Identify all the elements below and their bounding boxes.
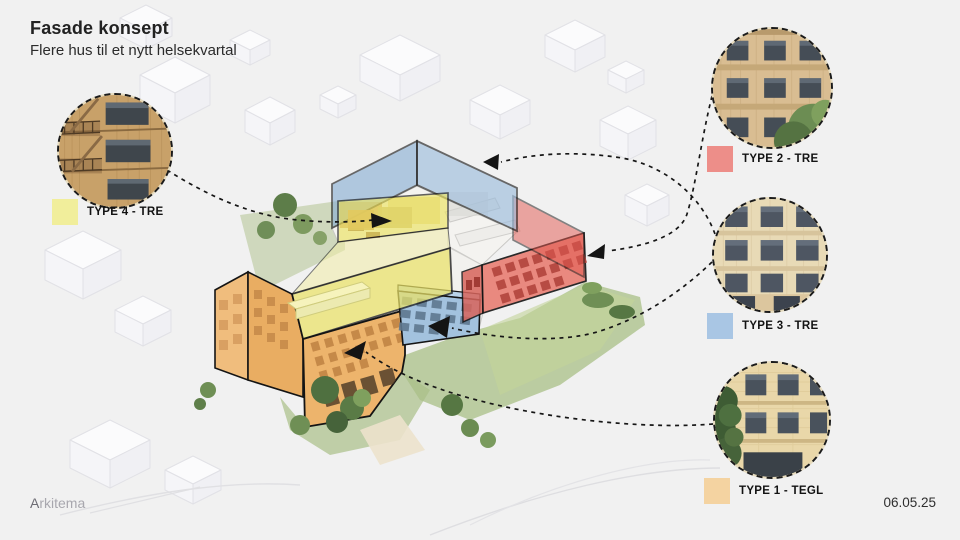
page-subtitle: Flere hus til et nytt helsekvartal (30, 42, 237, 59)
type-3-swatch (707, 313, 733, 339)
page-title: Fasade konsept (30, 18, 237, 39)
type-1-facade-photo (715, 363, 829, 477)
legend-row-type-4: TYPE 4 - TRE (52, 199, 163, 225)
legend-row-type-2: TYPE 2 - TRE (707, 146, 818, 172)
type-4-swatch (52, 199, 78, 225)
type-1-swatch (704, 478, 730, 504)
type-3-facade-photo (714, 199, 826, 311)
slide-date: 06.05.25 (883, 495, 936, 510)
type-3-label: TYPE 3 - TRE (742, 320, 818, 332)
type-4-photo-callout (57, 93, 173, 209)
header: Fasade konsept Flere hus til et nytt hel… (30, 18, 237, 59)
type-3-photo-callout (712, 197, 828, 313)
legend-row-type-3: TYPE 3 - TRE (707, 313, 818, 339)
type-2-swatch (707, 146, 733, 172)
arkitema-logo: Arkitema (30, 495, 85, 511)
type-4-facade-photo (59, 95, 171, 207)
type-4-label: TYPE 4 - TRE (87, 206, 163, 218)
slide: Fasade konsept Flere hus til et nytt hel… (0, 0, 960, 540)
legend-row-type-1: TYPE 1 - TEGL (704, 478, 823, 504)
type-2-facade-photo (713, 29, 831, 147)
type-2-label: TYPE 2 - TRE (742, 153, 818, 165)
arrow-type2 (587, 244, 605, 259)
type-1-label: TYPE 1 - TEGL (739, 485, 823, 497)
type-1-photo-callout (713, 361, 831, 479)
type-2-photo-callout (711, 27, 833, 149)
arrow-type3-upper (483, 154, 499, 170)
